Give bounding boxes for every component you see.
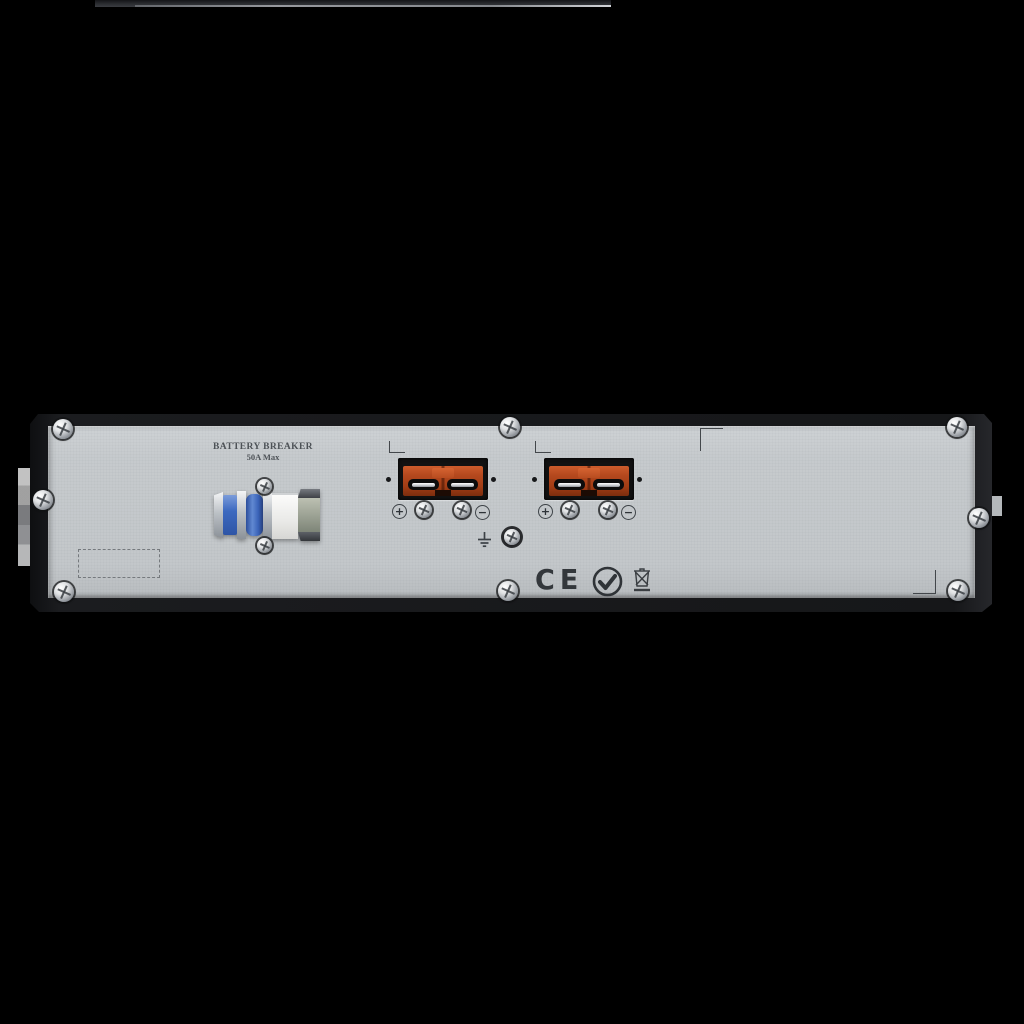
connector-contact-slot [447,479,478,490]
screw-icon [53,419,73,439]
screw-icon [500,417,520,437]
breaker-right-face [298,498,320,532]
battery-connector-group-2: + − [531,441,643,526]
screw-icon [454,502,470,518]
connector-notch [581,490,597,496]
minus-terminal-symbol: − [475,505,490,520]
screw-icon [33,490,53,510]
breaker-clamp [237,491,246,539]
connector-contact-slot [554,479,585,490]
battery-breaker-label: BATTERY BREAKER 50A Max [198,442,328,463]
ground-icon [476,531,493,548]
plus-terminal-symbol: + [538,504,553,519]
battery-connector-socket [398,458,488,500]
panel-alignment-mark [700,428,723,451]
connector-contact [412,483,435,487]
rivet-dot [532,477,537,482]
label-placeholder-outline [78,549,160,578]
panel-alignment-mark [389,441,405,453]
screw-icon [54,582,74,602]
connector-latch-tab [578,468,600,478]
breaker-bracket-left [214,492,223,538]
screw-icon [562,502,578,518]
weee-crossed-bin-icon [631,566,653,594]
connector-contact [451,483,474,487]
breaker-clamp [263,491,272,539]
screw-icon [416,502,432,518]
rear-panel-face: BATTERY BREAKER 50A Max [48,426,975,598]
breaker-body [272,493,298,539]
battery-breaker-switch [214,489,320,541]
screw-icon [498,581,518,601]
rivet-dot [386,477,391,482]
battery-connector-socket [544,458,634,500]
product-photo: BATTERY BREAKER 50A Max [0,0,1024,1024]
screw-icon [600,502,616,518]
plus-terminal-symbol: + [392,504,407,519]
panel-alignment-mark [913,570,936,594]
connector-notch [435,490,451,496]
rivet-dot [491,477,496,482]
breaker-bracket-right-top [298,489,320,498]
connector-contact-slot [593,479,624,490]
anderson-connector [549,466,629,496]
breaker-toggle [223,495,237,535]
screw-icon [257,538,272,553]
rivet-dot [637,477,642,482]
panel-alignment-mark [535,441,551,453]
anderson-connector [403,466,483,496]
rcm-certification-icon [591,565,624,598]
connector-contact [558,483,581,487]
ce-mark: CE [535,565,583,597]
breaker-label-line2: 50A Max [198,453,328,463]
breaker-cylinder [246,494,263,536]
screw-icon [947,417,967,437]
battery-connector-group-1: + − [385,441,497,526]
adjacent-unit-edge [95,0,611,7]
edge-highlight [135,5,611,7]
breaker-bracket-right-bottom [298,532,320,541]
minus-terminal-symbol: − [621,505,636,520]
connector-latch-tab [432,468,454,478]
connector-contact-slot [408,479,439,490]
screw-icon [948,581,968,601]
connector-contact [597,483,620,487]
screw-icon [257,479,272,494]
screw-icon [969,508,989,528]
screw-icon [504,529,520,545]
battery-pack-chassis: BATTERY BREAKER 50A Max [30,414,992,612]
